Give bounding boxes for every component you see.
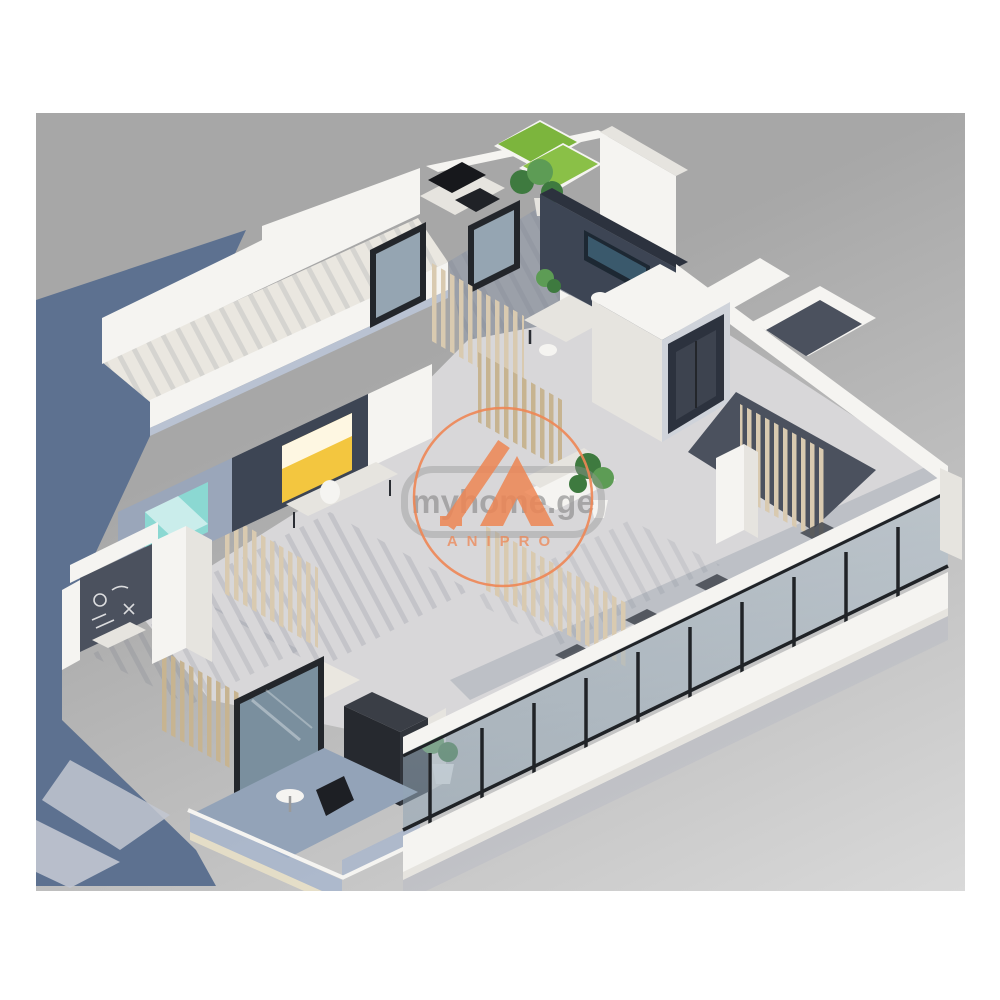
watermark-brand-text: ANIPRO: [383, 533, 623, 550]
watermark-logo: [403, 397, 603, 597]
watermark-logo-mark: [440, 444, 554, 526]
column: [152, 526, 212, 664]
screenshot-canvas: myhome.ge ANIPRO: [0, 0, 1000, 1000]
